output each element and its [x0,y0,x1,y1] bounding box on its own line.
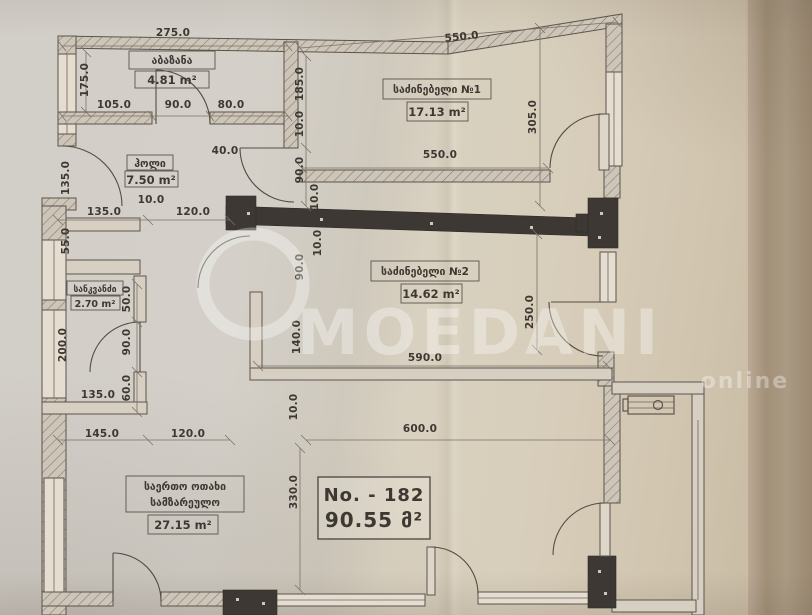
bottom-wall-mid [161,592,230,606]
dim-label: 330.0 [288,475,300,509]
right-wall-mid [604,166,620,198]
dim-label: 135.0 [87,206,121,218]
bedroom1-east-door [550,114,609,170]
dim-label: 135.0 [60,161,72,195]
column-east-mid [588,198,618,248]
sanitary-right-wall-lower [134,372,146,402]
dim-label: 275.0 [156,27,190,39]
dim-label: 60.0 [121,375,133,402]
top-wall-left [58,36,448,54]
watermark-subtitle: online [701,369,789,394]
hall-shaft-wall-2 [66,260,140,274]
room-area-bedroom1: 17.13 m² [408,105,465,119]
balcony-door-east [553,503,610,556]
ac-unit [623,396,674,414]
balcony-south-wall [612,600,696,612]
dim-label: 90.0 [121,329,133,356]
balcony-north-wall [612,382,704,394]
dim-label: 10.0 [294,111,306,138]
dim-label: 185.0 [294,67,306,101]
dim-label: 175.0 [79,63,91,97]
dim-label: 10.0 [288,394,300,421]
right-wall-top [606,24,622,72]
unit-info-box: No. - 182 90.55 მ² [318,477,430,539]
dim-label: 80.0 [218,99,245,111]
corridor-lintel-block [226,196,256,230]
bathroom-south-wall-right [210,112,290,124]
bedroom2-south-wall [250,368,612,380]
dim-label: 600.0 [403,423,437,435]
dim-label: 200.0 [57,328,69,362]
room-area-living: 27.15 m² [154,518,211,532]
dim-label: 55.0 [60,228,72,255]
room-area-bathroom: 4.81 m² [147,73,196,87]
bottom-wall-left [42,592,113,606]
bedroom1-south-wall [300,170,550,182]
watermark-brand: MOEDANI [297,296,663,369]
room-label-bedroom2: საძინებელი №2 [381,266,469,278]
unit-area: 90.55 მ² [325,508,423,532]
livingroom-balcony-door-left [113,553,161,601]
dim-label: 135.0 [81,389,115,401]
dim-label: 120.0 [171,428,205,440]
dim-label: 305.0 [527,100,539,134]
room-label-bathroom: აბაზანა [152,55,193,67]
room-label-living-line2: სამზარეულო [150,497,220,509]
bathroom-south-wall-left [58,112,152,124]
shear-wall-band [226,206,590,236]
floorplan-photo: 275.0 175.0 105.0 90.0 80.0 550.0 185.0 … [0,0,812,615]
livingroom-south-door [427,547,478,595]
room-label-living-line1: საერთო ოთახი [144,481,226,493]
dim-label: 10.0 [138,194,165,206]
dim-label: 90.0 [165,99,192,111]
column-south-center [223,590,277,615]
dim-label: 145.0 [85,428,119,440]
dim-label: 40.0 [212,145,239,157]
room-label-bedroom1: საძინებელი №1 [393,84,481,96]
sanitary-south-wall [42,402,147,414]
structural-columns [223,196,618,615]
column-east-mid-stub [576,214,588,232]
livingroom-right-wall [604,386,620,503]
room-area-hall: 7.50 m² [126,173,175,187]
dim-label: 120.0 [176,206,210,218]
dim-label: 10.0 [309,184,321,211]
bedroom1-hall-door [240,148,294,202]
dim-label: 550.0 [423,149,457,161]
dim-label: 10.0 [312,230,324,257]
room-label-hall: ჰოლი [134,158,166,170]
column-southeast [588,556,616,608]
floorplan-drawing: 275.0 175.0 105.0 90.0 80.0 550.0 185.0 … [0,0,812,615]
unit-number: No. - 182 [324,485,425,506]
dim-label: 105.0 [97,99,131,111]
room-area-sanitary: 2.70 m² [75,299,116,310]
dim-label: 90.0 [294,157,306,184]
room-label-sanitary: სანკვანძი [73,285,116,295]
